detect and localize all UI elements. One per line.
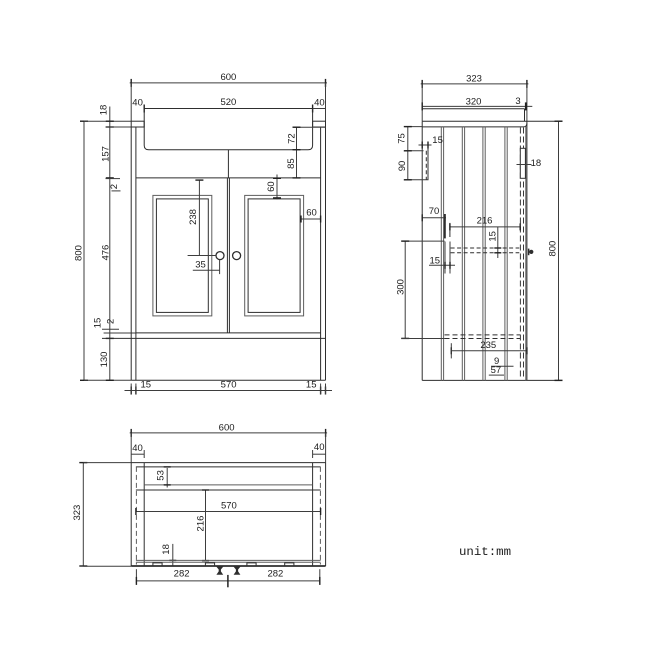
svg-text:70: 70 [429,206,440,217]
svg-text:2: 2 [109,184,120,189]
svg-text:570: 570 [221,380,237,391]
svg-text:15: 15 [93,318,104,329]
svg-text:40: 40 [132,443,143,454]
svg-text:600: 600 [220,72,236,83]
svg-text:3: 3 [515,96,520,107]
svg-text:85: 85 [286,158,297,169]
svg-text:15: 15 [141,380,152,391]
svg-text:300: 300 [395,279,406,295]
svg-text:235: 235 [480,340,496,351]
svg-text:18: 18 [161,544,172,555]
svg-text:15: 15 [430,255,441,266]
svg-text:130: 130 [99,352,110,368]
svg-text:72: 72 [287,133,298,144]
svg-text:800: 800 [74,245,85,261]
svg-text:476: 476 [100,245,111,261]
svg-text:800: 800 [548,241,559,257]
svg-text:75: 75 [397,133,408,144]
svg-text:600: 600 [219,422,235,433]
svg-text:15: 15 [488,231,499,242]
svg-text:40: 40 [314,442,325,453]
svg-text:216: 216 [196,516,207,532]
svg-text:53: 53 [155,470,166,481]
svg-text:15: 15 [432,135,443,146]
svg-text:60: 60 [306,207,317,218]
svg-text:18: 18 [99,105,110,116]
svg-text:320: 320 [466,96,482,107]
svg-text:35: 35 [195,259,206,270]
svg-text:520: 520 [220,97,236,108]
svg-text:323: 323 [466,74,482,85]
svg-text:18: 18 [531,158,542,169]
svg-text:216: 216 [477,216,493,227]
svg-text:40: 40 [314,98,325,109]
svg-text:90: 90 [397,161,408,172]
svg-text:157: 157 [100,146,111,162]
svg-text:15: 15 [306,380,317,391]
svg-text:282: 282 [267,569,283,580]
svg-text:2: 2 [106,319,117,324]
svg-text:57: 57 [491,365,502,376]
svg-text:570: 570 [221,500,237,511]
svg-text:282: 282 [174,569,190,580]
svg-text:323: 323 [72,505,83,521]
svg-text:40: 40 [132,98,143,109]
svg-text:60: 60 [266,181,277,192]
svg-text:unit:mm: unit:mm [459,545,511,559]
svg-text:238: 238 [188,209,199,225]
